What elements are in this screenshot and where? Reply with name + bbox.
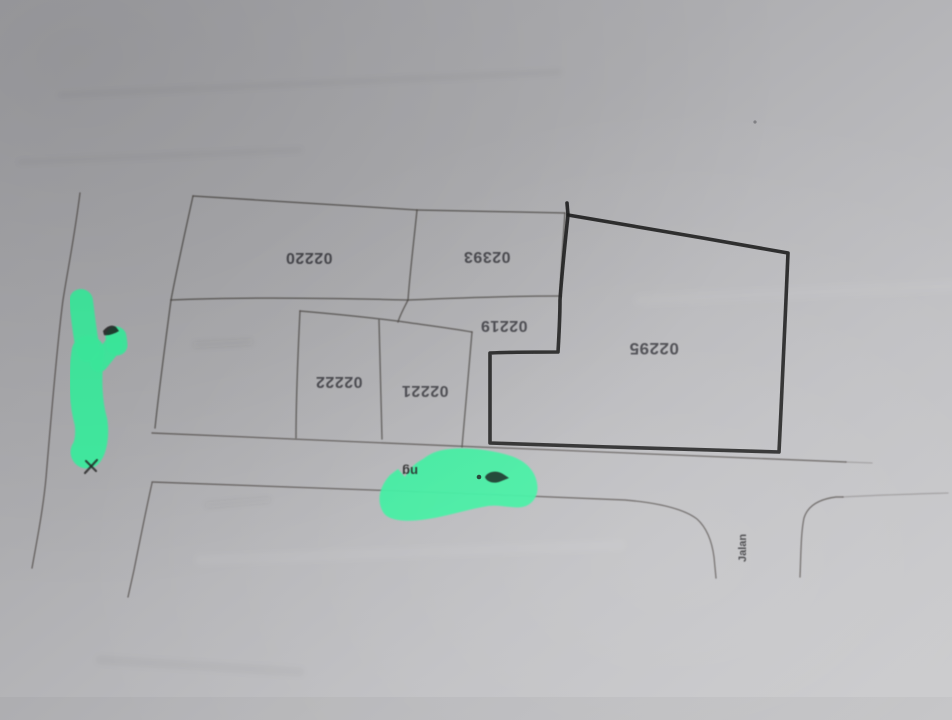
- scan-shadow: [0, 0, 952, 720]
- plot-map-canvas: ng 02220 02393 02219 02222 02221 02295 J…: [0, 0, 952, 720]
- scanned-document-photo: ng 02220 02393 02219 02222 02221 02295 J…: [0, 0, 952, 720]
- bottom-shade: [0, 697, 952, 720]
